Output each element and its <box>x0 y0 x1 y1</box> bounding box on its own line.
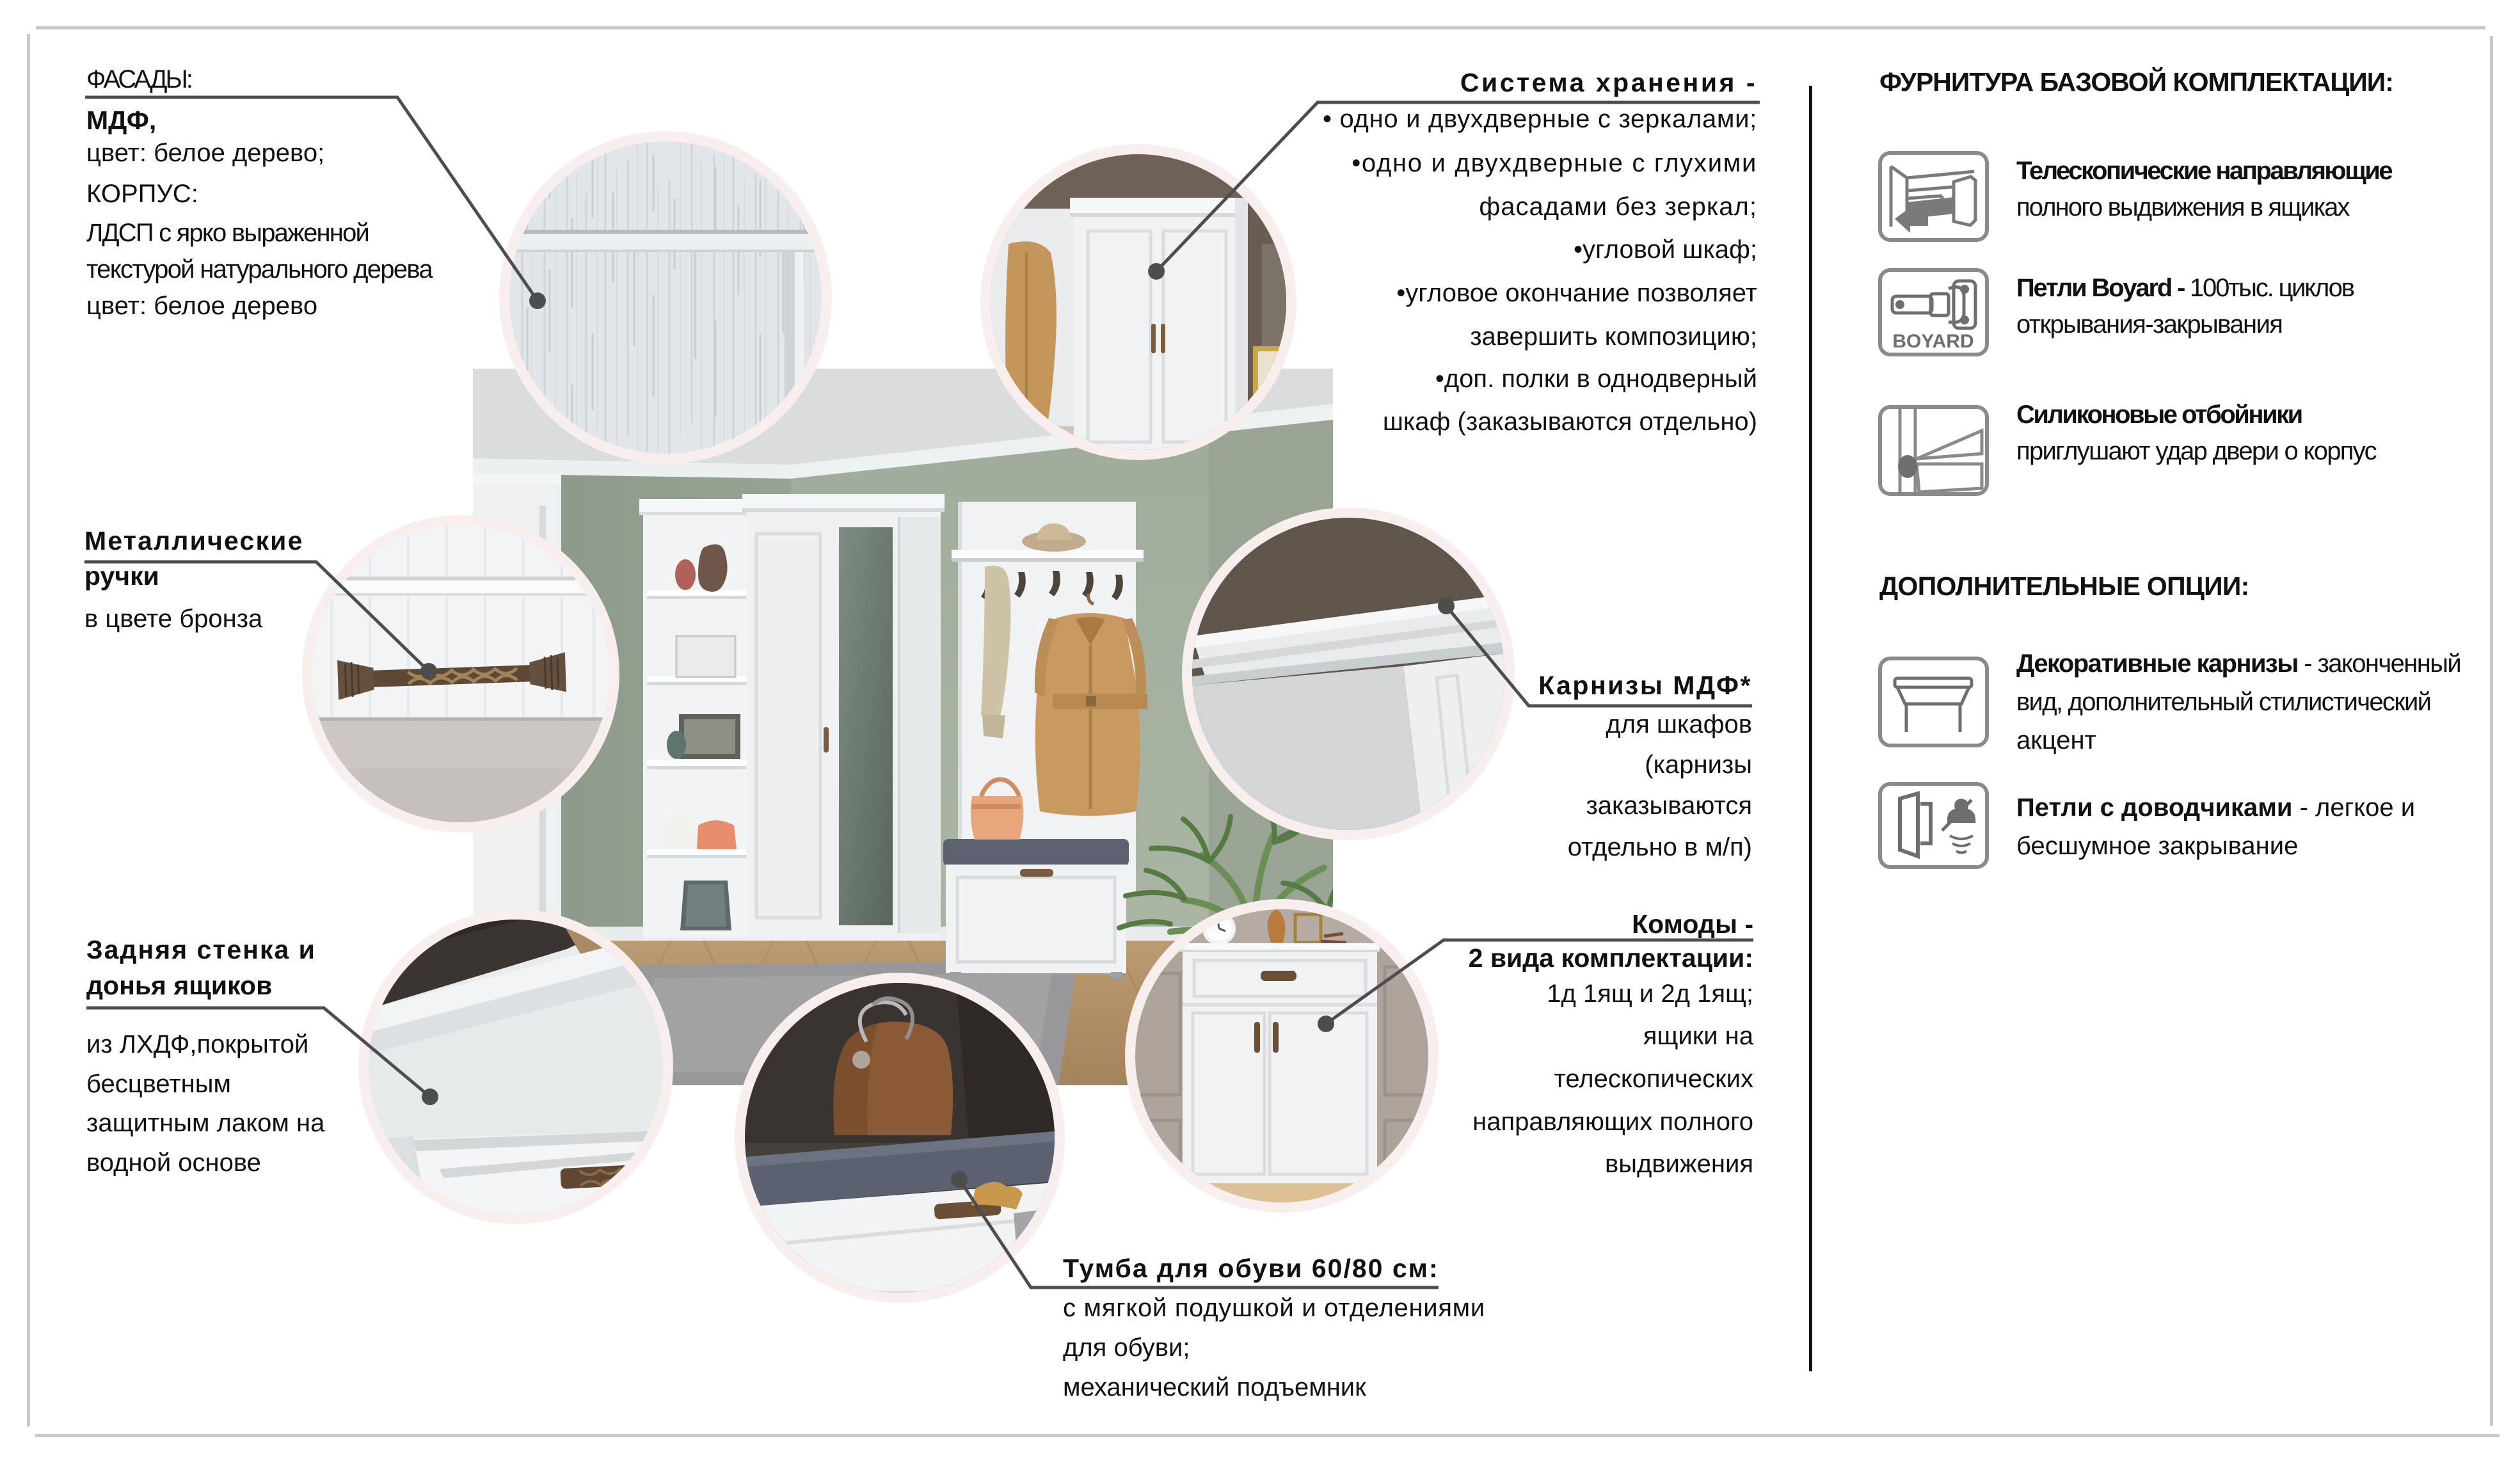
svg-text:BOYARD: BOYARD <box>1892 331 1974 352</box>
